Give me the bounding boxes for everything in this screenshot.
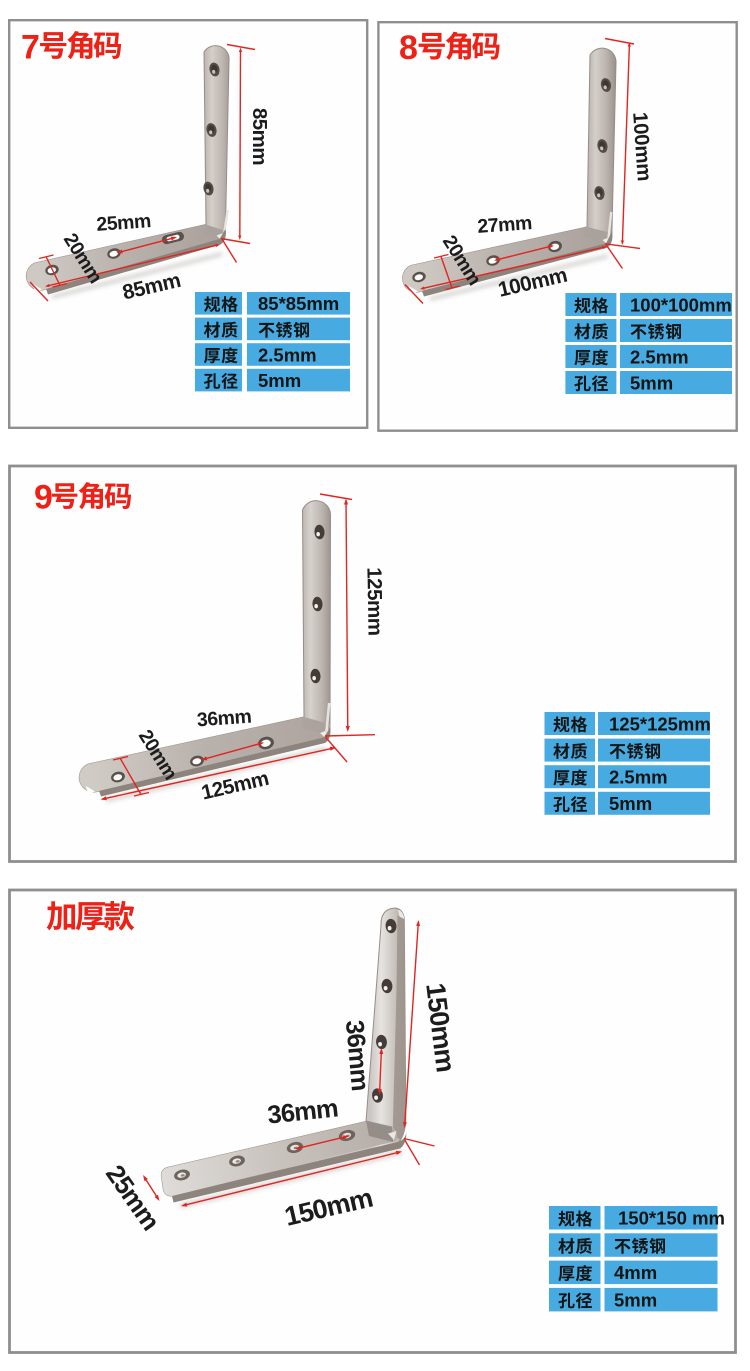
svg-text:150*150 mm: 150*150 mm [618,1208,725,1229]
svg-text:100*100mm: 100*100mm [630,294,732,315]
svg-text:7: 7 [21,29,40,67]
svg-text:8: 8 [399,29,418,67]
svg-text:36mm: 36mm [196,706,252,732]
svg-text:2.5mm: 2.5mm [630,346,689,367]
svg-text:5mm: 5mm [614,1290,657,1311]
svg-text:9: 9 [34,479,53,517]
svg-text:125mm: 125mm [362,567,386,636]
svg-text:2.5mm: 2.5mm [258,344,317,365]
svg-text:85*85mm: 85*85mm [258,293,339,314]
svg-text:2.5mm: 2.5mm [609,767,668,788]
svg-text:4mm: 4mm [614,1262,657,1283]
svg-text:5mm: 5mm [630,372,673,393]
svg-text:125*125mm: 125*125mm [609,713,711,734]
svg-text:5mm: 5mm [258,370,301,391]
svg-text:25mm: 25mm [96,210,152,236]
svg-text:85mm: 85mm [248,108,271,165]
svg-text:5mm: 5mm [609,793,652,814]
svg-text:100mm: 100mm [628,111,656,182]
svg-text:27mm: 27mm [477,212,533,238]
